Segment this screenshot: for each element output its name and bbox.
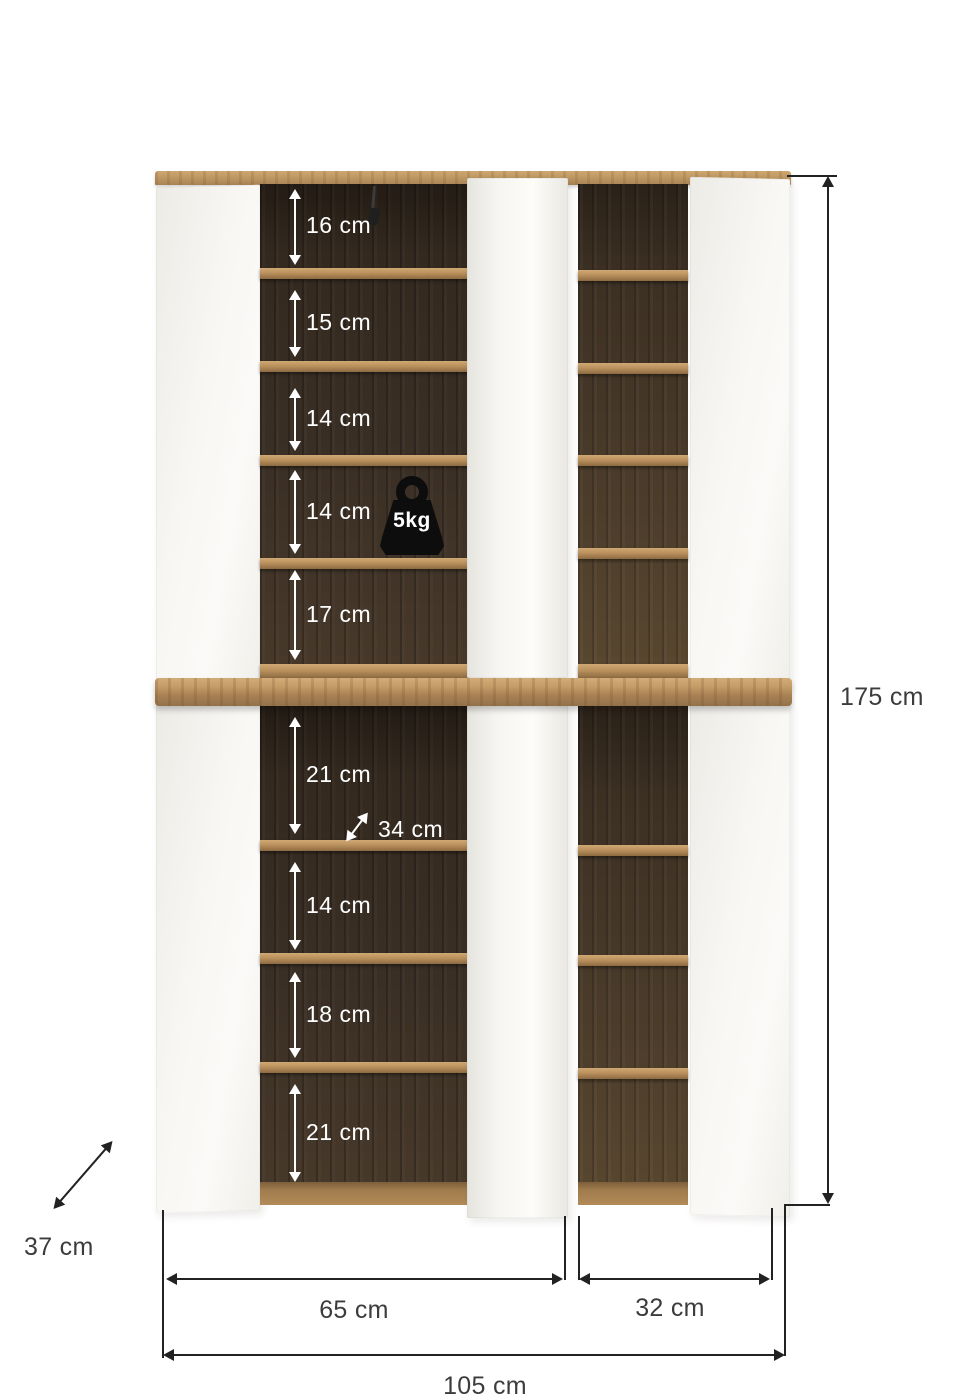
dimension-arrow: [288, 470, 302, 554]
product-dimension-diagram: 16 cm 15 cm 14 cm 14 cm 17 cm 21 cm 14 c…: [0, 0, 958, 1400]
shelf: [578, 363, 688, 374]
extension-line: [771, 1208, 773, 1280]
shelf-height-label: 16 cm: [306, 212, 371, 239]
shelf-height-label: 14 cm: [306, 892, 371, 919]
shelf-height-label: 21 cm: [306, 1119, 371, 1146]
dimension-arrow: [288, 189, 302, 265]
depth-dimension-arrow: [48, 1136, 118, 1213]
left-section-width-label: 65 cm: [294, 1296, 414, 1325]
extension-line: [784, 1204, 786, 1356]
shelf: [578, 548, 688, 559]
right-door-top: [690, 177, 790, 687]
shelf: [578, 955, 688, 966]
shelf: [260, 361, 470, 372]
middle-divider-shelf: [155, 678, 792, 706]
depth-label: 37 cm: [24, 1233, 94, 1262]
shelf: [260, 1062, 470, 1073]
shelf: [578, 270, 688, 281]
dimension-arrow: [288, 290, 302, 357]
total-width-dimension-line: [163, 1348, 785, 1362]
shelf: [260, 558, 470, 569]
shelf: [260, 664, 470, 678]
left-door-top: [156, 185, 260, 692]
extension-line: [564, 1216, 566, 1280]
shelf-height-label: 21 cm: [306, 761, 371, 788]
right-section-width-label: 32 cm: [610, 1294, 730, 1323]
shelf: [260, 455, 470, 466]
max-load-label: 5kg: [380, 509, 444, 533]
diagonal-shelf-label: 34 cm: [378, 816, 443, 843]
shelf: [260, 268, 470, 279]
overall-height-label: 175 cm: [840, 683, 924, 712]
shelf: [578, 845, 688, 856]
height-dimension-line: [821, 176, 835, 1204]
extension-line: [578, 1216, 580, 1280]
right-door-bottom: [690, 701, 790, 1217]
shelf-height-label: 14 cm: [306, 498, 371, 525]
cabinet-bottom-panel: [578, 1182, 688, 1205]
left-door-bottom: [156, 701, 260, 1214]
shelf-height-label: 17 cm: [306, 601, 371, 628]
kettlebell-weight-icon: 5kg: [380, 476, 444, 555]
dimension-arrow: [288, 388, 302, 451]
width-dimension-line: [166, 1272, 563, 1286]
dimension-arrow: [288, 570, 302, 660]
width-dimension-line: [579, 1272, 770, 1286]
dimension-arrow: [288, 1084, 302, 1182]
shelf: [578, 1068, 688, 1079]
center-door-bottom: [467, 702, 568, 1218]
dimension-arrow: [288, 717, 302, 834]
shelf-height-label: 15 cm: [306, 309, 371, 336]
extension-line: [162, 1210, 164, 1358]
shelf: [578, 455, 688, 466]
right-section-lower-interior: [578, 706, 688, 1205]
dimension-arrow: [288, 972, 302, 1058]
shelf-height-label: 18 cm: [306, 1001, 371, 1028]
extension-line: [785, 1204, 830, 1206]
shelf: [260, 953, 470, 964]
total-width-label: 105 cm: [420, 1372, 550, 1400]
right-section-upper-interior: [578, 184, 688, 678]
dimension-arrow: [288, 862, 302, 950]
center-door-top: [467, 178, 568, 678]
shelf-height-label: 14 cm: [306, 405, 371, 432]
shelf: [578, 664, 688, 678]
cabinet-bottom-panel: [260, 1182, 470, 1205]
